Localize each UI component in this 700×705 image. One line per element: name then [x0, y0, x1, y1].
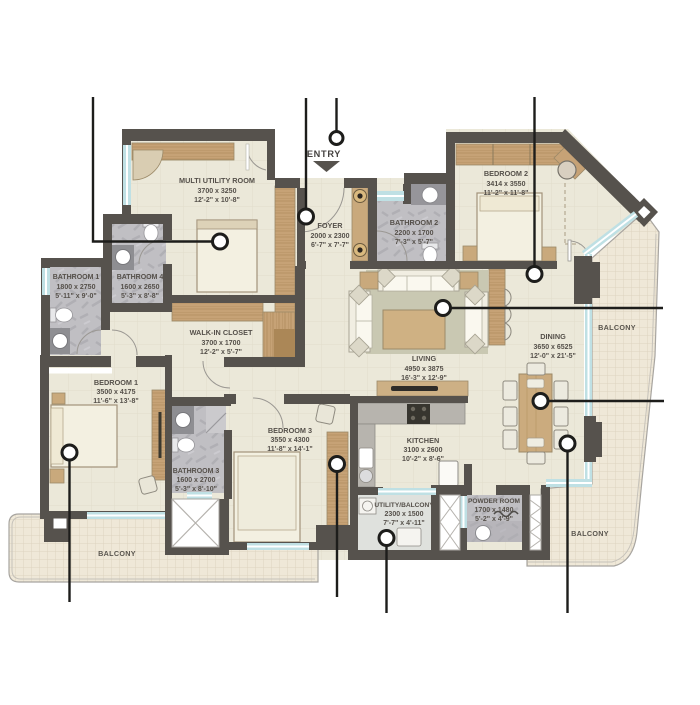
svg-text:6'-7" x 7'-7": 6'-7" x 7'-7": [311, 242, 349, 249]
svg-text:5'-11" x 9'-0": 5'-11" x 9'-0": [55, 293, 97, 300]
svg-text:FOYER: FOYER: [317, 221, 343, 230]
svg-text:12'-0" x 21'-5": 12'-0" x 21'-5": [530, 353, 576, 360]
svg-text:BEDROOM 2: BEDROOM 2: [484, 169, 528, 178]
svg-text:10'-2" x 8'-6": 10'-2" x 8'-6": [402, 456, 444, 463]
svg-text:ENTRY: ENTRY: [307, 149, 341, 159]
svg-text:3100 x 2600: 3100 x 2600: [404, 447, 443, 454]
svg-text:BATHROOM 2: BATHROOM 2: [390, 218, 439, 227]
svg-text:DINING: DINING: [540, 332, 566, 341]
svg-text:BALCONY: BALCONY: [571, 529, 609, 538]
svg-text:LIVING: LIVING: [412, 354, 437, 363]
svg-text:3414 x 3550: 3414 x 3550: [487, 181, 526, 188]
svg-text:2200 x 1700: 2200 x 1700: [395, 230, 434, 237]
svg-text:1600 x 2700: 1600 x 2700: [177, 477, 216, 484]
svg-text:MULTI UTILITY ROOM: MULTI UTILITY ROOM: [179, 176, 255, 185]
svg-text:11'-2" x 11'-8": 11'-2" x 11'-8": [484, 190, 529, 197]
svg-text:4950 x 3875: 4950 x 3875: [405, 366, 444, 373]
svg-text:3650 x 6525: 3650 x 6525: [534, 344, 573, 351]
svg-text:POWDER ROOM: POWDER ROOM: [468, 498, 521, 505]
svg-text:12'-2" x 10'-8": 12'-2" x 10'-8": [194, 197, 240, 204]
svg-text:3700 x 1700: 3700 x 1700: [202, 340, 241, 347]
svg-text:7'-3" x 5'-7": 7'-3" x 5'-7": [395, 239, 433, 246]
svg-text:UTILITY/BALCONY: UTILITY/BALCONY: [374, 502, 434, 509]
svg-text:5'-3" x 8'-10": 5'-3" x 8'-10": [175, 486, 217, 493]
svg-text:3700 x 3250: 3700 x 3250: [198, 188, 237, 195]
svg-text:WALK-IN CLOSET: WALK-IN CLOSET: [190, 328, 253, 337]
svg-text:11'-8" x 14'-1": 11'-8" x 14'-1": [267, 446, 312, 453]
svg-text:1700 x 1480: 1700 x 1480: [475, 507, 514, 514]
svg-text:2000 x 2300: 2000 x 2300: [311, 233, 350, 240]
svg-text:BATHROOM 1: BATHROOM 1: [53, 274, 100, 281]
svg-text:BEDROOM 1: BEDROOM 1: [94, 378, 138, 387]
svg-text:BALCONY: BALCONY: [98, 549, 136, 558]
svg-text:7'-7" x 4'-11": 7'-7" x 4'-11": [383, 520, 425, 527]
svg-text:16'-3" x 12'-9": 16'-3" x 12'-9": [401, 375, 447, 382]
svg-text:5'-3" x 8'-8": 5'-3" x 8'-8": [121, 293, 159, 300]
svg-text:KITCHEN: KITCHEN: [407, 436, 439, 445]
svg-text:BEDROOM 3: BEDROOM 3: [268, 426, 312, 435]
svg-text:3550 x 4300: 3550 x 4300: [271, 437, 310, 444]
svg-text:1800 x 2750: 1800 x 2750: [57, 284, 96, 291]
svg-text:2300 x 1500: 2300 x 1500: [385, 511, 424, 518]
svg-text:BATHROOM 4: BATHROOM 4: [117, 274, 164, 281]
svg-text:3500 x 4175: 3500 x 4175: [97, 389, 136, 396]
svg-text:12'-2" x 5'-7": 12'-2" x 5'-7": [200, 349, 242, 356]
svg-text:11'-6" x 13'-8": 11'-6" x 13'-8": [93, 398, 138, 405]
svg-text:BATHROOM 3: BATHROOM 3: [173, 468, 220, 475]
svg-text:1600 x 2650: 1600 x 2650: [121, 284, 160, 291]
svg-text:5'-2" x 4'-9": 5'-2" x 4'-9": [475, 516, 513, 523]
svg-text:BALCONY: BALCONY: [598, 323, 636, 332]
